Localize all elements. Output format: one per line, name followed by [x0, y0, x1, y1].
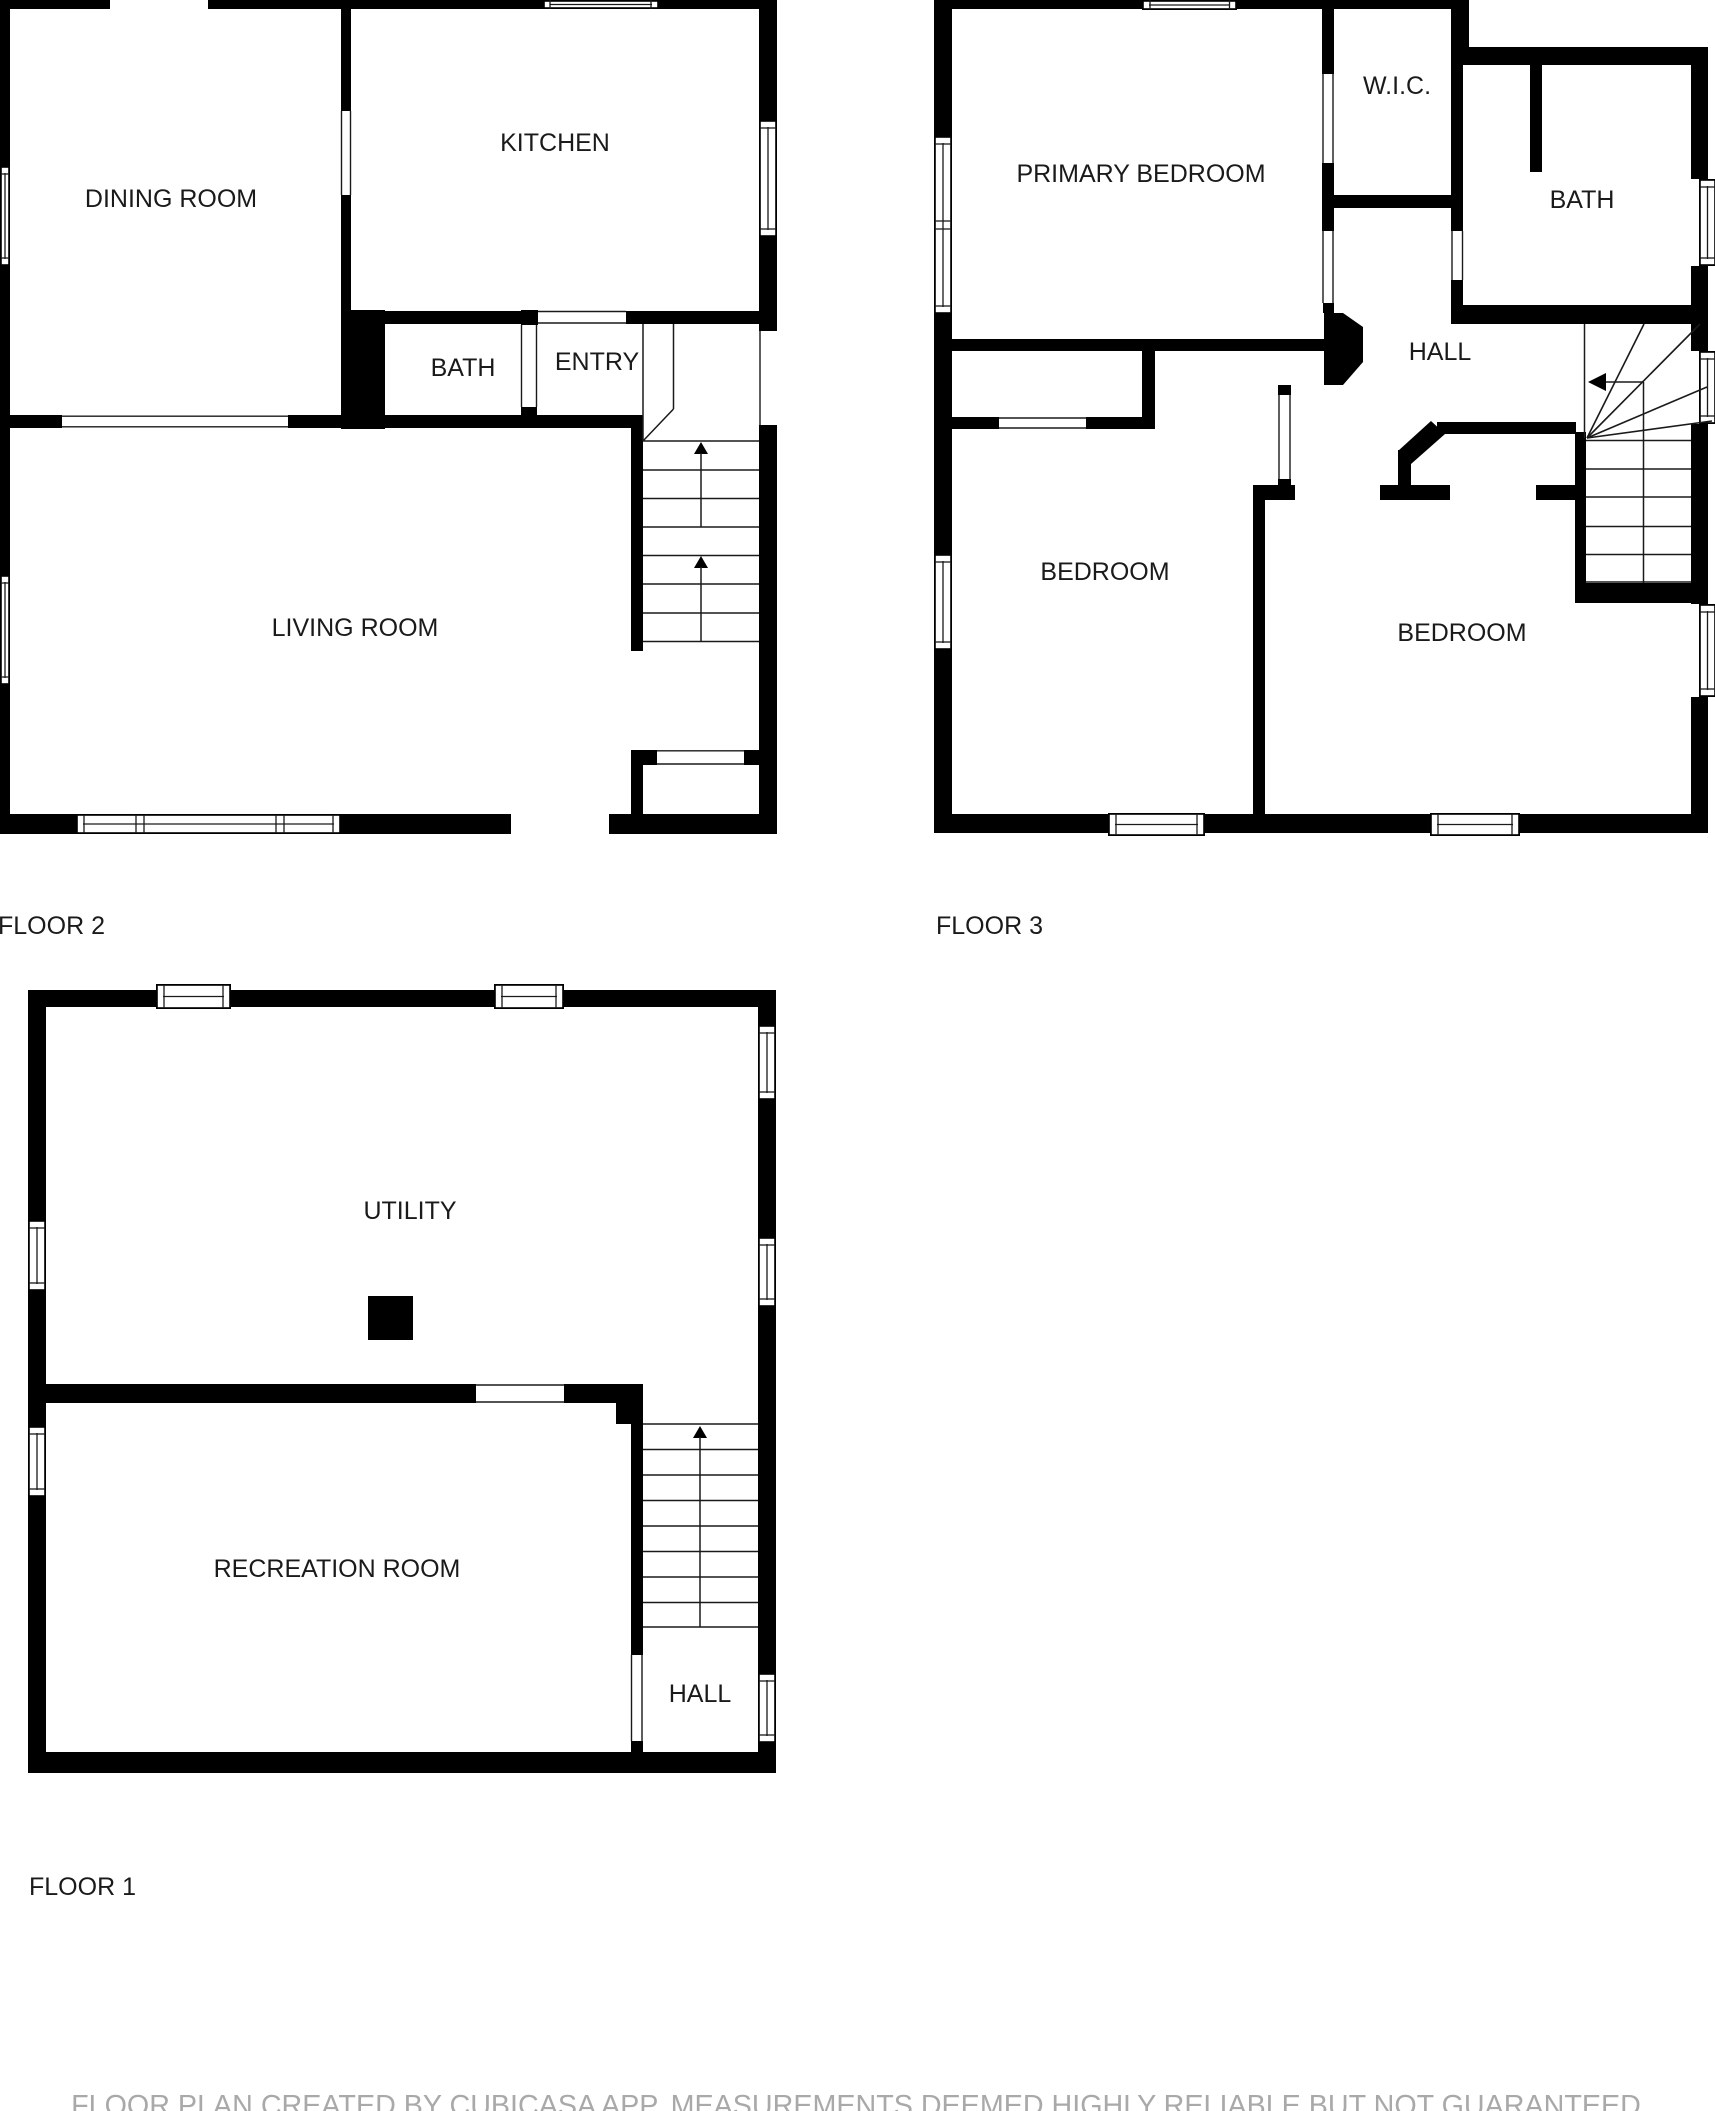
svg-text:FLOOR PLAN CREATED BY CUBICASA: FLOOR PLAN CREATED BY CUBICASA APP. MEAS… — [71, 2090, 1641, 2111]
svg-text:ENTRY: ENTRY — [555, 348, 640, 376]
svg-text:RECREATION ROOM: RECREATION ROOM — [214, 1555, 461, 1583]
svg-text:DINING ROOM: DINING ROOM — [85, 185, 257, 213]
svg-text:BATH: BATH — [1550, 186, 1615, 214]
svg-text:HALL: HALL — [1409, 338, 1472, 366]
svg-text:UTILITY: UTILITY — [363, 1197, 456, 1225]
svg-text:HALL: HALL — [669, 1680, 732, 1708]
svg-text:BEDROOM: BEDROOM — [1397, 619, 1526, 647]
svg-text:FLOOR 3: FLOOR 3 — [936, 912, 1043, 940]
svg-text:BEDROOM: BEDROOM — [1040, 558, 1169, 586]
svg-text:W.I.C.: W.I.C. — [1363, 72, 1431, 100]
svg-text:PRIMARY BEDROOM: PRIMARY BEDROOM — [1016, 160, 1265, 188]
svg-text:KITCHEN: KITCHEN — [500, 129, 610, 157]
svg-text:LIVING ROOM: LIVING ROOM — [272, 614, 439, 642]
svg-text:BATH: BATH — [431, 354, 496, 382]
svg-text:FLOOR 1: FLOOR 1 — [29, 1873, 136, 1901]
svg-text:FLOOR 2: FLOOR 2 — [0, 912, 105, 940]
